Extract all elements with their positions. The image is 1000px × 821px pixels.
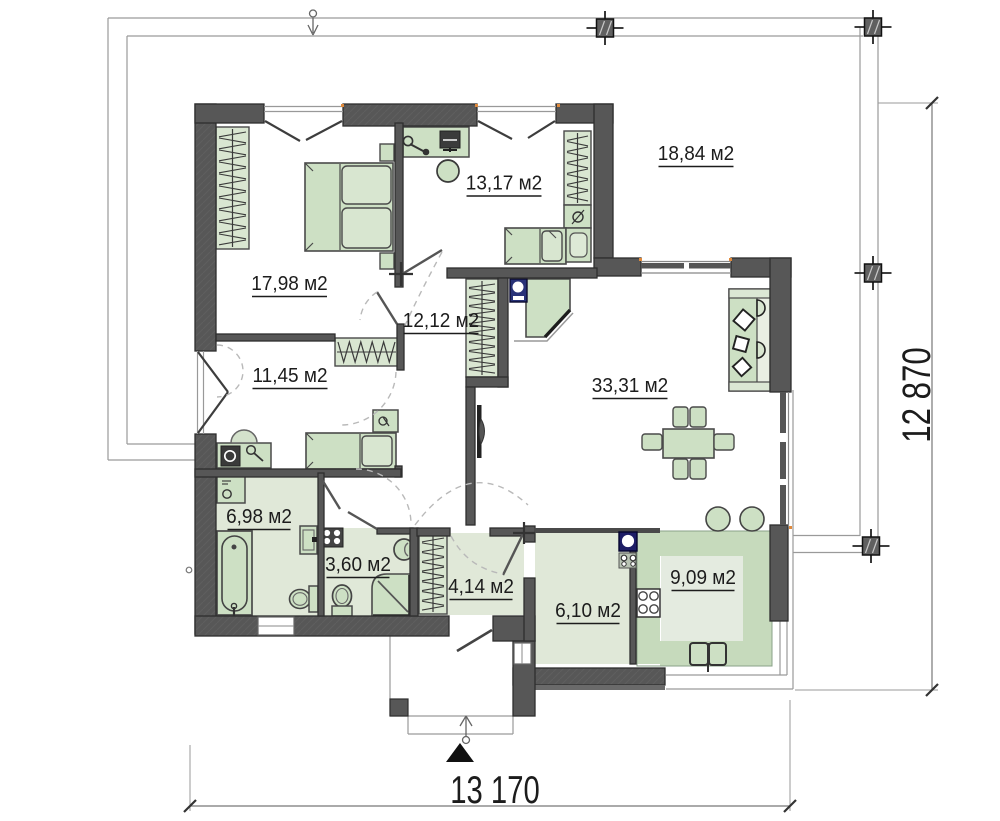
svg-text:11,45 м2: 11,45 м2 (252, 365, 327, 388)
svg-text:4,14 м2: 4,14 м2 (448, 576, 514, 599)
svg-text:17,98 м2: 17,98 м2 (251, 273, 327, 296)
svg-text:33,31 м2: 33,31 м2 (592, 375, 668, 398)
svg-text:6,10 м2: 6,10 м2 (555, 600, 621, 623)
svg-text:12,12 м2: 12,12 м2 (403, 310, 479, 333)
svg-text:12 870: 12 870 (894, 347, 939, 442)
svg-text:6,98 м2: 6,98 м2 (226, 506, 292, 529)
svg-text:13 170: 13 170 (450, 769, 539, 812)
svg-text:3,60 м2: 3,60 м2 (325, 554, 391, 577)
svg-text:18,84 м2: 18,84 м2 (658, 143, 734, 166)
svg-text:13,17 м2: 13,17 м2 (466, 172, 542, 195)
svg-text:9,09 м2: 9,09 м2 (670, 567, 736, 590)
